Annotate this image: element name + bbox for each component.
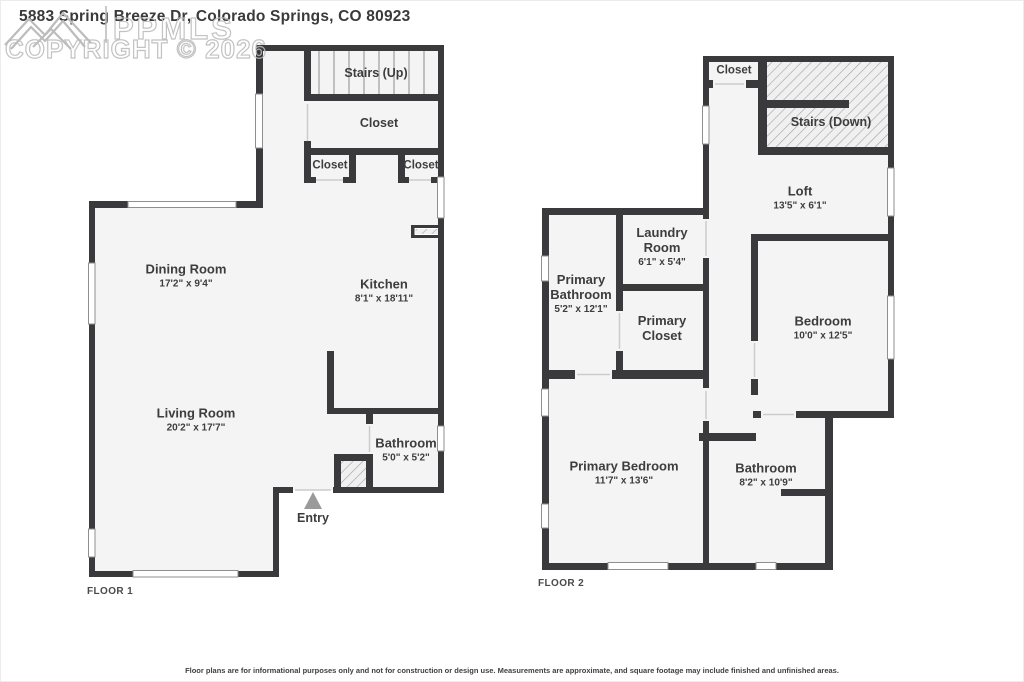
kitchen-label: Kitchen 8'1" x 18'11" — [355, 277, 413, 304]
room-dims: 20'2" x 17'7" — [157, 422, 236, 434]
floor2-tag: FLOOR 2 — [538, 578, 584, 589]
room-name: Closet — [716, 64, 751, 77]
room-dims: 5'0" x 5'2" — [375, 452, 436, 464]
primary-bathroom-label: Primary Bathroom 5'2" x 12'1" — [539, 273, 623, 315]
disclaimer-text: Floor plans are for informational purpos… — [1, 666, 1023, 675]
room-dims: 6'1" x 5'4" — [623, 257, 701, 269]
bedroom-label: Bedroom 10'0" x 12'5" — [794, 314, 853, 341]
closet-right-label: Closet — [403, 159, 438, 172]
room-dims: 8'1" x 18'11" — [355, 293, 413, 305]
closet-left-label: Closet — [312, 159, 347, 172]
primary-closet-label: Primary Closet — [623, 314, 701, 344]
entry-arrow-icon — [304, 492, 322, 509]
laundry-room-label: Laundry Room 6'1" x 5'4" — [623, 226, 701, 268]
dining-room-label: Dining Room 17'2" x 9'4" — [146, 262, 227, 289]
stairs-up-label: Stairs (Up) — [344, 66, 407, 80]
living-room-label: Living Room 20'2" x 17'7" — [157, 406, 236, 433]
floor1-tag: FLOOR 1 — [87, 586, 133, 597]
room-dims: 10'0" x 12'5" — [794, 330, 853, 342]
room-name: Primary Bedroom — [569, 459, 678, 474]
closet-top-label: Closet — [360, 116, 398, 130]
loft-label: Loft 13'5" x 6'1" — [773, 184, 826, 211]
floorplan-page: 5883 Spring Breeze Dr, Colorado Springs,… — [0, 0, 1024, 682]
closet2-label: Closet — [716, 64, 751, 77]
room-name: Stairs (Down) — [791, 115, 872, 129]
primary-bedroom-label: Primary Bedroom 11'7" x 13'6" — [569, 459, 678, 486]
room-name: Closet — [312, 159, 347, 172]
room-name: Living Room — [157, 406, 236, 421]
bathroom2-label: Bathroom 8'2" x 10'9" — [735, 461, 796, 488]
room-name: Primary Bathroom — [539, 273, 623, 303]
room-name: Primary Closet — [623, 314, 701, 344]
room-dims: 5'2" x 12'1" — [539, 304, 623, 316]
room-name: Laundry Room — [623, 226, 701, 256]
room-dims: 13'5" x 6'1" — [773, 200, 826, 212]
entry-fireplace-hatch — [341, 461, 366, 487]
bathroom1-label: Bathroom 5'0" x 5'2" — [375, 436, 436, 463]
room-dims: 17'2" x 9'4" — [146, 278, 227, 290]
watermark-copyright: COPYRIGHT © 2026 — [5, 34, 267, 65]
room-dims: 11'7" x 13'6" — [569, 475, 678, 487]
room-name: Bathroom — [375, 436, 436, 451]
room-name: Entry — [297, 511, 329, 525]
stairs-down-label: Stairs (Down) — [791, 115, 872, 129]
room-name: Bedroom — [794, 314, 853, 329]
room-name: Stairs (Up) — [344, 66, 407, 80]
room-name: Bathroom — [735, 461, 796, 476]
room-name: Loft — [773, 184, 826, 199]
room-name: Dining Room — [146, 262, 227, 277]
floorplan-drawing — [1, 1, 1024, 682]
room-dims: 8'2" x 10'9" — [735, 477, 796, 489]
entry-label: Entry — [297, 511, 329, 525]
room-name: Closet — [403, 159, 438, 172]
room-name: Kitchen — [355, 277, 413, 292]
room-name: Closet — [360, 116, 398, 130]
